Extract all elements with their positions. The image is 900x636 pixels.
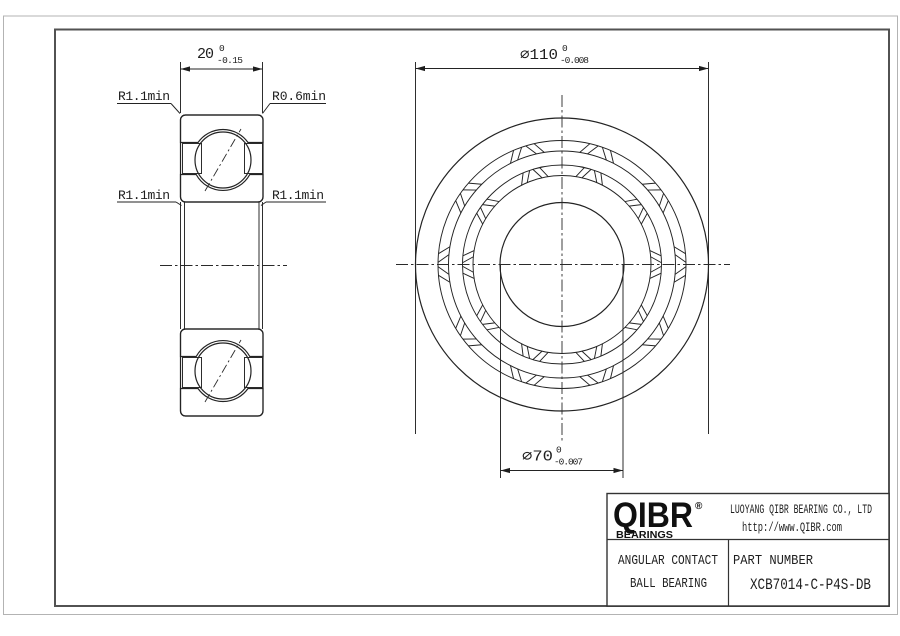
dim-width-lower-tol: -0.15 [217, 55, 243, 66]
part-number-label: PART NUMBER [733, 553, 814, 569]
logo-tagline: BEARINGS [616, 530, 673, 541]
company-name: LUOYANG QIBR BEARING CO., LTD [730, 503, 872, 517]
dim-od-upper-tol: 0 [562, 43, 568, 54]
company-website: http://www.QIBR.com [742, 520, 842, 535]
dim-width-value: 20 [197, 46, 214, 63]
product-type-line2: BALL BEARING [630, 576, 707, 592]
dim-bore-lower-tol: -0.007 [554, 457, 583, 468]
fillet-label-text: R1.1min [118, 188, 170, 203]
fillet-label-text: R1.1min [118, 89, 170, 104]
part-number-value: XCB7014-C-P4S-DB [750, 576, 871, 594]
registered-trademark-icon: ® [695, 501, 703, 512]
product-type-line1: ANGULAR CONTACT [618, 553, 718, 569]
title-block: QIBR ® BEARINGS LUOYANG QIBR BEARING CO.… [607, 494, 889, 607]
dim-bore-upper-tol: 0 [556, 445, 562, 456]
dim-od-value: ∅110 [520, 47, 558, 64]
fillet-label-text: R1.1min [272, 188, 324, 203]
bearing-drawing: 20 0 -0.15 ∅110 0 -0.008 ∅70 0 -0.007 R1… [0, 0, 900, 636]
fillet-label-text: R0.6min [272, 89, 326, 104]
dim-width-upper-tol: 0 [219, 43, 225, 54]
dim-od-lower-tol: -0.008 [560, 55, 589, 66]
qibr-logo: QIBR ® BEARINGS [613, 496, 703, 541]
drawing-page: 20 0 -0.15 ∅110 0 -0.008 ∅70 0 -0.007 R1… [0, 0, 900, 636]
dim-bore-value: ∅70 [522, 449, 553, 466]
